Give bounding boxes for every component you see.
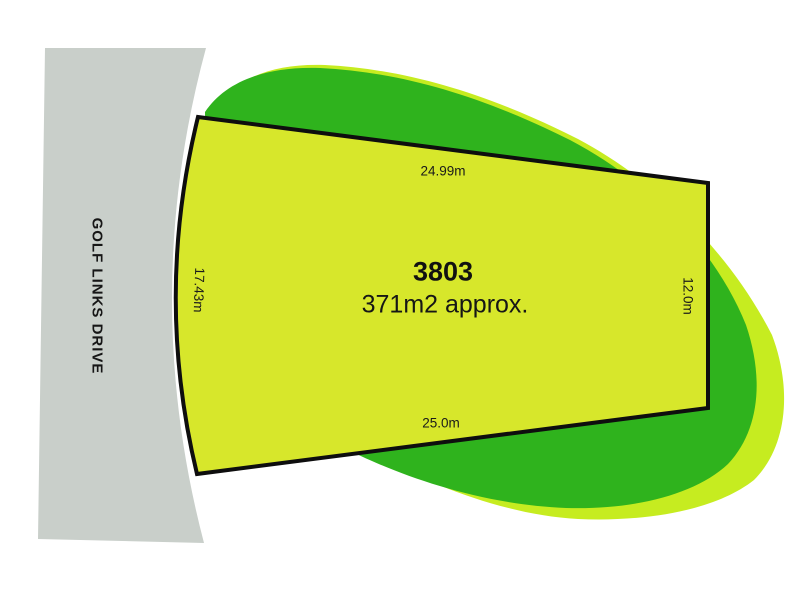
lot-area-label: 371m2 approx. xyxy=(362,291,529,320)
dimension-top-label: 24.99m xyxy=(420,164,465,179)
dimension-bottom-label: 25.0m xyxy=(422,416,460,431)
dimension-left-label: 17.43m xyxy=(191,267,208,313)
site-plan: GOLF LINKS DRIVE 3803 371m2 approx. 24.9… xyxy=(0,0,800,600)
dimension-right-label: 12.0m xyxy=(681,277,696,315)
street-name-label: GOLF LINKS DRIVE xyxy=(89,218,106,375)
lot-number-label: 3803 xyxy=(413,257,473,288)
